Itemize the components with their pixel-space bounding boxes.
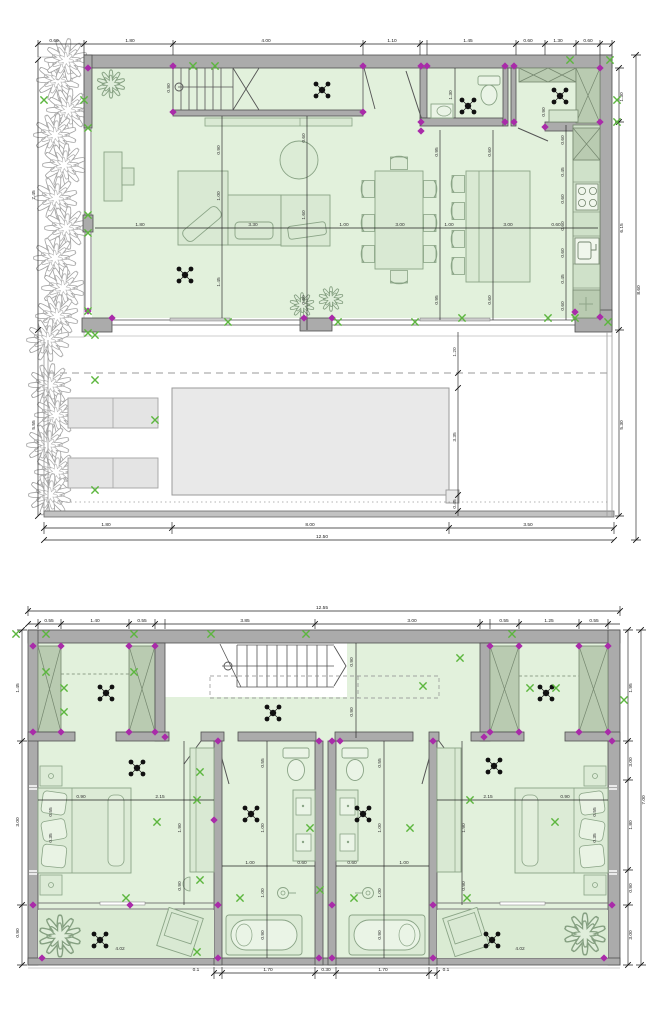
svg-text:4.02: 4.02 — [515, 946, 525, 952]
svg-text:3.30: 3.30 — [248, 222, 258, 228]
svg-text:0.90: 0.90 — [177, 881, 183, 891]
svg-text:1.00: 1.00 — [245, 860, 255, 866]
svg-text:1.00: 1.00 — [444, 222, 454, 228]
svg-text:0.30: 0.30 — [321, 967, 331, 973]
svg-text:3.35: 3.35 — [452, 432, 458, 442]
svg-text:0.60: 0.60 — [301, 295, 307, 305]
svg-text:8.60: 8.60 — [636, 285, 642, 295]
svg-text:1.80: 1.80 — [125, 38, 135, 44]
svg-text:1.90: 1.90 — [461, 823, 467, 833]
svg-text:0.90: 0.90 — [76, 794, 86, 800]
svg-text:0.95: 0.95 — [434, 147, 440, 157]
svg-text:0.60: 0.60 — [301, 133, 307, 143]
svg-text:0.60: 0.60 — [583, 38, 593, 44]
svg-text:0.60: 0.60 — [297, 860, 307, 866]
svg-text:0.55: 0.55 — [499, 618, 509, 624]
svg-text:3.85: 3.85 — [240, 618, 250, 624]
svg-text:1.40: 1.40 — [90, 618, 100, 624]
svg-text:0.60: 0.60 — [560, 194, 566, 204]
svg-text:0.90: 0.90 — [377, 930, 383, 940]
svg-text:3.50: 3.50 — [523, 522, 533, 528]
svg-text:1.80: 1.80 — [628, 820, 634, 830]
svg-text:0.95: 0.95 — [434, 295, 440, 305]
svg-text:3.00: 3.00 — [15, 817, 21, 827]
svg-text:2.15: 2.15 — [483, 794, 493, 800]
svg-text:1.00: 1.00 — [377, 888, 383, 898]
svg-text:0.55: 0.55 — [377, 758, 383, 768]
svg-text:0.1: 0.1 — [193, 967, 200, 973]
svg-text:4.02: 4.02 — [115, 946, 125, 952]
svg-text:1.80: 1.80 — [101, 522, 111, 528]
svg-text:0.90: 0.90 — [560, 794, 570, 800]
svg-text:1.45: 1.45 — [15, 683, 21, 693]
svg-text:7.00: 7.00 — [641, 795, 647, 805]
svg-text:1.70: 1.70 — [378, 967, 388, 973]
svg-text:0.90: 0.90 — [15, 928, 21, 938]
svg-text:0.55: 0.55 — [589, 618, 599, 624]
svg-text:0.60: 0.60 — [560, 248, 566, 258]
svg-text:5.30: 5.30 — [619, 420, 625, 430]
svg-text:0.90: 0.90 — [461, 881, 467, 891]
svg-text:0.60: 0.60 — [487, 147, 493, 157]
svg-text:3.00: 3.00 — [407, 618, 417, 624]
svg-text:1.90: 1.90 — [177, 823, 183, 833]
svg-text:0.60: 0.60 — [49, 38, 59, 44]
svg-text:3.00: 3.00 — [503, 222, 513, 228]
svg-text:0.55: 0.55 — [137, 618, 147, 624]
svg-text:1.00: 1.00 — [399, 860, 409, 866]
svg-text:3.00: 3.00 — [395, 222, 405, 228]
svg-text:1.80: 1.80 — [135, 222, 145, 228]
svg-text:1.00: 1.00 — [260, 823, 266, 833]
svg-text:0.35: 0.35 — [592, 833, 598, 843]
svg-text:0.45: 0.45 — [560, 167, 566, 177]
svg-text:0.90: 0.90 — [628, 883, 634, 893]
svg-text:1.30: 1.30 — [553, 38, 563, 44]
svg-text:4.00: 4.00 — [261, 38, 271, 44]
svg-text:0.55: 0.55 — [592, 807, 598, 817]
svg-text:1.70: 1.70 — [263, 967, 273, 973]
svg-text:0.90: 0.90 — [541, 107, 547, 117]
svg-text:12.55: 12.55 — [316, 605, 328, 611]
svg-text:1.95: 1.95 — [628, 683, 634, 693]
svg-text:5.55: 5.55 — [31, 420, 37, 430]
svg-text:1.10: 1.10 — [387, 38, 397, 44]
svg-text:0.60: 0.60 — [551, 222, 561, 228]
svg-text:0.55: 0.55 — [48, 807, 54, 817]
svg-text:0.1: 0.1 — [443, 967, 450, 973]
svg-text:0.60: 0.60 — [487, 295, 493, 305]
svg-text:3.00: 3.00 — [628, 757, 634, 767]
svg-text:1.30: 1.30 — [448, 90, 454, 100]
svg-text:0.90: 0.90 — [260, 930, 266, 940]
svg-text:0.35: 0.35 — [48, 833, 54, 843]
svg-text:0.45: 0.45 — [560, 274, 566, 284]
svg-text:0.55: 0.55 — [260, 758, 266, 768]
svg-text:1.45: 1.45 — [216, 277, 222, 287]
svg-text:1.25: 1.25 — [544, 618, 554, 624]
svg-text:0.45: 0.45 — [452, 499, 458, 509]
svg-text:0.60: 0.60 — [523, 38, 533, 44]
svg-text:3.00: 3.00 — [628, 930, 634, 940]
svg-text:7.45: 7.45 — [31, 190, 37, 200]
svg-text:1.60: 1.60 — [301, 210, 307, 220]
svg-text:0.90: 0.90 — [166, 83, 172, 93]
svg-text:1.00: 1.00 — [339, 222, 349, 228]
svg-text:0.60: 0.60 — [560, 221, 566, 231]
svg-text:0.60: 0.60 — [560, 301, 566, 311]
svg-text:1.00: 1.00 — [216, 191, 222, 201]
svg-text:1.00: 1.00 — [260, 888, 266, 898]
svg-text:0.90: 0.90 — [349, 707, 355, 717]
svg-text:0.90: 0.90 — [216, 145, 222, 155]
svg-text:2.15: 2.15 — [155, 794, 165, 800]
svg-text:12.50: 12.50 — [316, 534, 328, 540]
svg-text:0.90: 0.90 — [349, 657, 355, 667]
svg-text:1.45: 1.45 — [463, 38, 473, 44]
svg-text:0.60: 0.60 — [560, 135, 566, 145]
svg-text:6.15: 6.15 — [619, 223, 625, 233]
svg-text:1.20: 1.20 — [452, 347, 458, 357]
svg-text:1.00: 1.00 — [377, 823, 383, 833]
svg-text:8.00: 8.00 — [305, 522, 315, 528]
svg-text:0.55: 0.55 — [44, 618, 54, 624]
svg-text:0.60: 0.60 — [347, 860, 357, 866]
